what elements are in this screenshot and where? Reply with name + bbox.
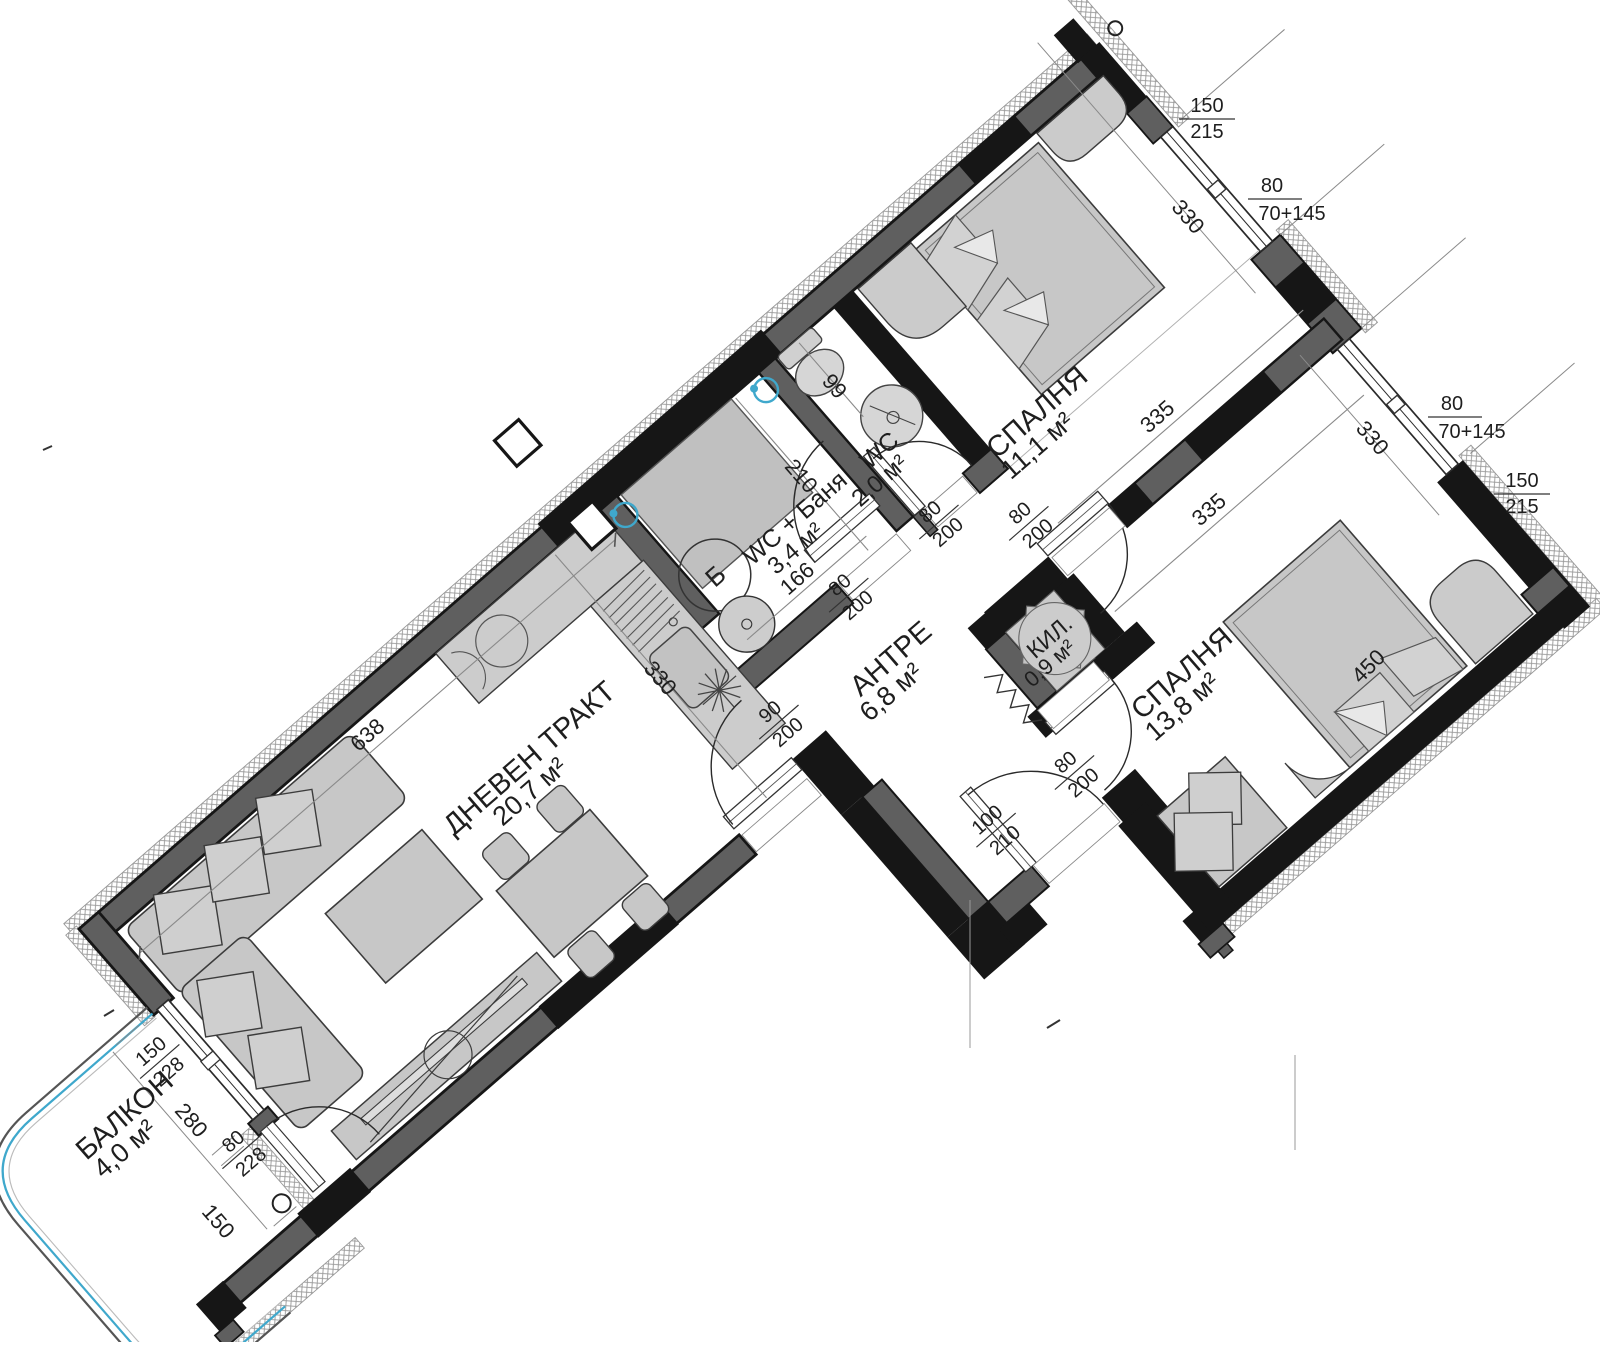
svg-text:150: 150 <box>1505 470 1538 492</box>
svg-text:150: 150 <box>1190 95 1223 117</box>
svg-text:215: 215 <box>1190 121 1223 143</box>
svg-text:80: 80 <box>1261 175 1283 197</box>
svg-text:215: 215 <box>1505 496 1538 518</box>
svg-text:70+145: 70+145 <box>1438 421 1505 443</box>
svg-text:70+145: 70+145 <box>1258 203 1325 225</box>
svg-text:80: 80 <box>1441 393 1463 415</box>
